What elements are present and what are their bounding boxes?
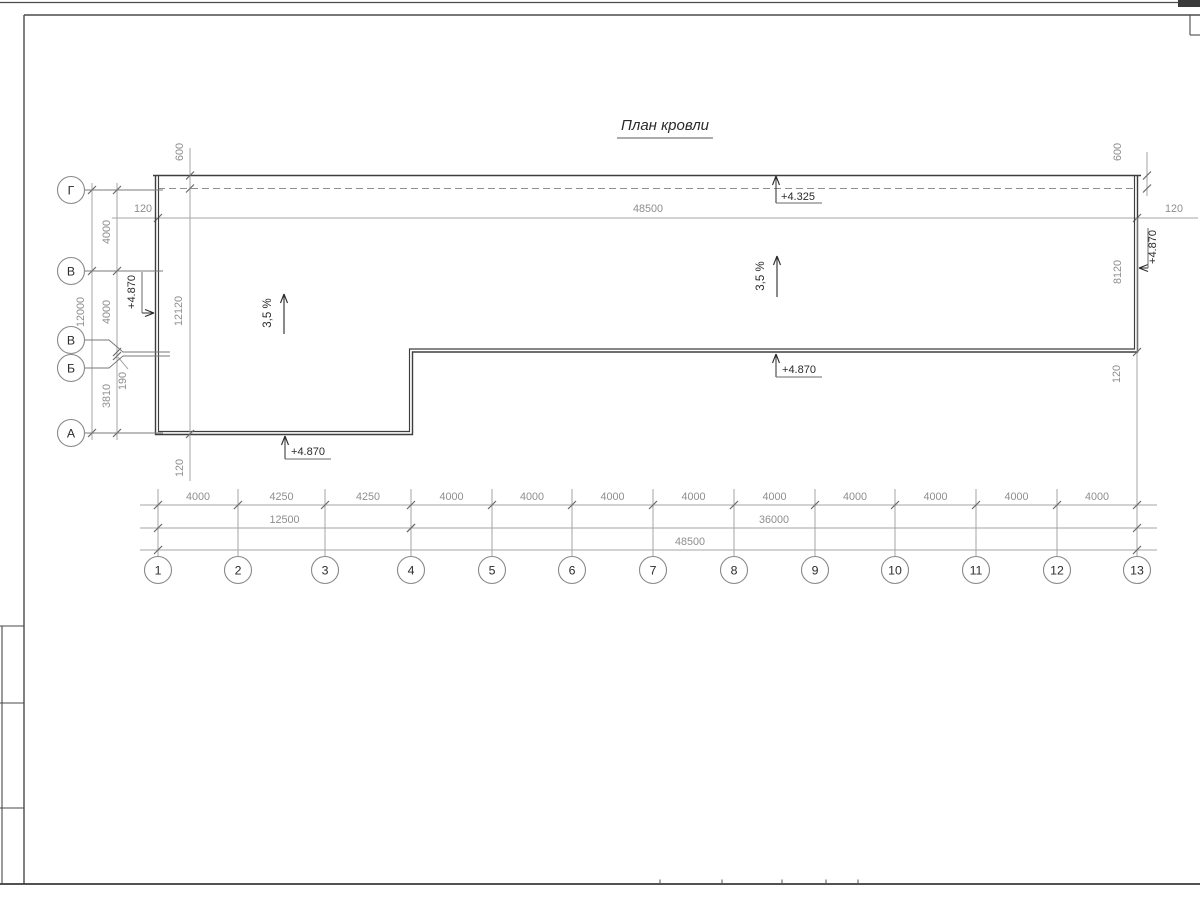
- dim-label: 4250: [269, 491, 293, 503]
- dim-label: 600: [1112, 143, 1124, 161]
- dim-label: 12120: [173, 296, 185, 326]
- dim-label: 120: [174, 459, 186, 477]
- row-axis-bubble-label: Г: [68, 183, 75, 197]
- dim-label: 120: [1165, 203, 1183, 215]
- col-axis-bubble-label: 1: [155, 563, 162, 577]
- dim-label: 4000: [101, 220, 113, 244]
- col-axis-bubble-label: 8: [731, 563, 738, 577]
- axis-leader-Б: [84, 356, 170, 368]
- dim-label: 36000: [759, 514, 789, 526]
- row-axis-bubble-label: Б: [67, 361, 75, 375]
- elevation-arrow: [145, 313, 154, 317]
- dim-label: 4000: [101, 300, 113, 324]
- drawing-title: План кровли: [621, 117, 710, 134]
- dim-label: 190: [117, 372, 129, 390]
- col-axis-bubble-label: 6: [569, 563, 576, 577]
- dim-label: 12500: [269, 514, 299, 526]
- elevation-arrow: [1139, 265, 1148, 269]
- dim-label: 48500: [675, 536, 705, 548]
- elevation-arrow: [285, 436, 289, 445]
- col-axis-bubble-label: 11: [970, 563, 983, 577]
- col-axis-bubble-label: 4: [408, 563, 415, 577]
- dim-label: 4000: [600, 491, 624, 503]
- dim-label: 12000: [75, 297, 87, 327]
- dim-label: 4000: [1004, 491, 1028, 503]
- elevation-label: +4.870: [782, 364, 816, 376]
- drawing-sheet: План кровли План кровли12048500120120004…: [0, 0, 1200, 900]
- elevation-label: +4.870: [291, 446, 325, 458]
- elevation-arrow: [776, 354, 780, 363]
- dim-label: 4000: [439, 491, 463, 503]
- col-axis-bubble-label: 5: [489, 563, 496, 577]
- dim-label: 48500: [633, 203, 663, 215]
- dim-label: 120: [1111, 365, 1123, 383]
- dim-label: 8120: [1112, 260, 1124, 284]
- dim-label: 3810: [101, 384, 113, 408]
- slope-label: 3,5 %: [262, 298, 274, 327]
- axis-leader-В: [84, 340, 170, 352]
- col-axis-bubble-label: 7: [650, 563, 657, 577]
- elevation-arrow: [773, 354, 777, 363]
- sheet-corner-mark: [1178, 0, 1200, 7]
- elevation-label: +4.870: [126, 275, 138, 309]
- elevation-label: +4.325: [781, 191, 815, 203]
- dim-label: 4000: [1085, 491, 1109, 503]
- row-axis-bubble-label: В: [67, 264, 75, 278]
- col-axis-bubble-label: 9: [812, 563, 819, 577]
- col-axis-bubble-label: 13: [1130, 563, 1144, 577]
- dim-label: 4250: [356, 491, 380, 503]
- col-axis-bubble-label: 12: [1050, 563, 1064, 577]
- dim-label: 4000: [843, 491, 867, 503]
- dim-label: 4000: [186, 491, 210, 503]
- dim-label: 4000: [520, 491, 544, 503]
- elevation-arrow: [282, 436, 286, 445]
- row-axis-bubble-label: А: [67, 426, 76, 440]
- dim-label: 4000: [681, 491, 705, 503]
- elevation-arrow: [776, 176, 780, 185]
- slope-label: 3,5 %: [755, 261, 767, 290]
- row-axis-bubble-label: В: [67, 333, 75, 347]
- col-axis-bubble-label: 2: [235, 563, 242, 577]
- dim-label: 4000: [762, 491, 786, 503]
- elevation-arrow: [145, 310, 154, 314]
- elevation-arrow: [773, 176, 777, 185]
- dim-label: 120: [134, 203, 152, 215]
- roof-plan-drawing: План кровли12048500120120004000400038106…: [0, 0, 1200, 900]
- elevation-label: +4.870: [1147, 230, 1159, 264]
- dim-label: 4000: [923, 491, 947, 503]
- col-axis-bubble-label: 3: [322, 563, 329, 577]
- dim-label: 600: [174, 143, 186, 161]
- elevation-arrow: [1139, 268, 1148, 272]
- col-axis-bubble-label: 10: [888, 563, 902, 577]
